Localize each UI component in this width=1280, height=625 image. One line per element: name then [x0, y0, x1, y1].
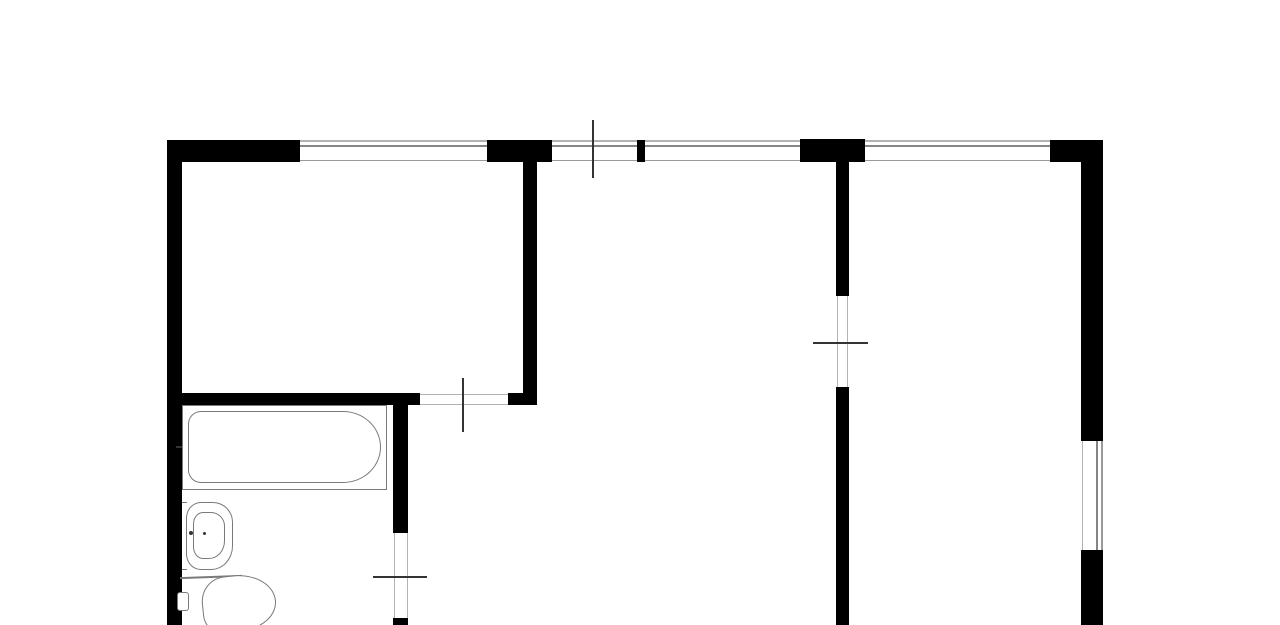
- hall-partition-wall-upper: [836, 162, 849, 296]
- living-room-door-jamb-top: [420, 394, 508, 395]
- window-top-4-pane-2: [865, 145, 1050, 147]
- window-top-3-pane-3: [645, 160, 800, 162]
- window-top-3-pane-2: [645, 145, 800, 147]
- living-room-bottom-wall: [167, 393, 420, 405]
- window-top-4-pane-1: [865, 140, 1050, 142]
- right-wall-upper: [1081, 162, 1103, 441]
- sink-wall-join-top: [182, 502, 187, 503]
- window-top-2-pane-3: [552, 160, 637, 162]
- top-wall-pier: [637, 140, 645, 162]
- bathroom-door-tick: [373, 576, 427, 578]
- window-top-2-pane-1: [552, 140, 637, 142]
- sink-faucet-dot-right: [203, 532, 206, 535]
- top-wall-junction: [800, 139, 865, 162]
- living-room-bottom-stub: [508, 393, 537, 405]
- window-right-wall-pane-3: [1101, 441, 1103, 550]
- bathroom-right-wall-upper: [393, 405, 408, 533]
- window-top-4-pane-3: [865, 160, 1050, 162]
- hall-door-tick: [813, 342, 868, 344]
- living-room-right-wall: [523, 162, 537, 405]
- top-wall-b: [487, 140, 552, 162]
- sink-wall-join-bottom: [182, 569, 187, 570]
- window-top-2-pane-2: [552, 145, 637, 147]
- top-wall-corner: [1050, 140, 1103, 162]
- window-right-wall-pane-1: [1082, 441, 1084, 550]
- window-top-3-pane-1: [645, 140, 800, 142]
- bathroom-right-wall-lower: [393, 618, 408, 625]
- toilet-bowl: [199, 571, 278, 625]
- window-top-1-pane-3: [300, 160, 487, 162]
- living-room-door-jamb-bottom: [420, 404, 508, 405]
- window-right-wall-pane-2: [1096, 441, 1098, 550]
- right-wall-lower: [1081, 550, 1103, 625]
- bathtub-basin: [188, 411, 381, 483]
- top-wall-a: [167, 140, 300, 162]
- window-top-1-pane-1: [300, 140, 487, 142]
- living-room-door-tick: [462, 378, 464, 432]
- floor-plan-canvas: [0, 0, 1280, 625]
- hall-partition-wall-lower: [836, 387, 849, 625]
- window-top-1-pane-2: [300, 145, 487, 147]
- sink-basin: [193, 512, 225, 559]
- sink-faucet-dot-left: [189, 531, 193, 535]
- toilet-tank: [177, 592, 189, 611]
- left-wall: [167, 140, 182, 625]
- balcony-door-tick: [592, 120, 594, 178]
